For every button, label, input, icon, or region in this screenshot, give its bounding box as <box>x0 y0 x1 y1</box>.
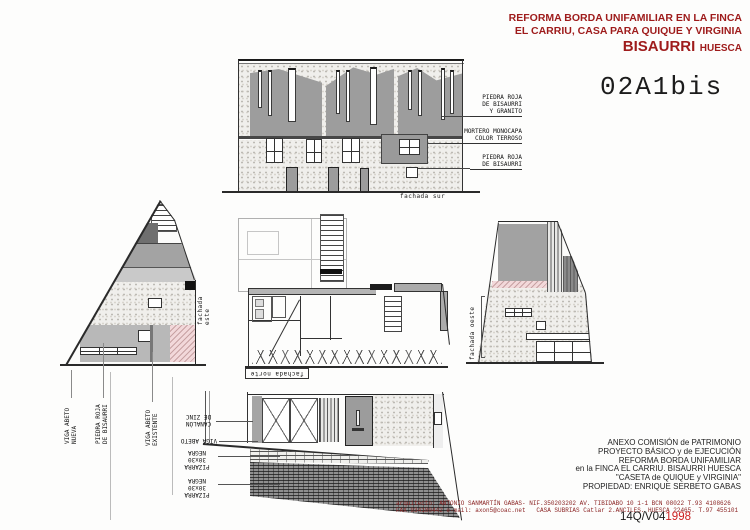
slit-window <box>408 70 412 110</box>
slit-window <box>336 70 340 114</box>
stone-wall <box>373 395 433 446</box>
slit-window <box>346 70 350 122</box>
east-section-drawing <box>63 198 205 370</box>
window-wide <box>536 341 592 362</box>
window-small <box>406 167 418 178</box>
lower-wall <box>80 325 170 362</box>
plan-outer-wall <box>248 288 249 368</box>
slit-window <box>268 70 272 116</box>
timber-door-leaf <box>290 398 318 443</box>
label-bracket <box>481 296 482 358</box>
plan-fixture <box>255 309 264 319</box>
annotation-slate-2: PIZARRA 30x30 NEGRA <box>176 477 218 498</box>
project-title-line1: REFORMA BORDA UNIFAMILIAR EN LA FINCA <box>509 12 742 25</box>
plan-fixture <box>255 299 264 307</box>
roof-panel <box>498 224 547 283</box>
plan-room <box>247 231 279 255</box>
facade-label-south: fachada sur <box>400 194 445 201</box>
door <box>286 167 298 192</box>
drawing-sheet: REFORMA BORDA UNIFAMILIAR EN LA FINCA EL… <box>0 0 750 530</box>
window <box>266 138 283 163</box>
south-wall-edge <box>238 60 239 192</box>
plan-line <box>311 219 312 291</box>
plan-zigzag-stone-edge <box>252 350 442 364</box>
south-roof-line-thin <box>238 63 464 64</box>
door-handle <box>356 410 360 426</box>
window <box>148 298 162 308</box>
label-bracket-tick <box>481 296 485 297</box>
facade-label-north-box: fachada norte <box>245 368 309 379</box>
facade-label-east: fachada este <box>197 283 211 325</box>
window <box>505 308 532 317</box>
window-sill <box>526 333 592 340</box>
south-wall-edge <box>462 60 463 192</box>
annotation-beam-existing: VIGA ABETO EXISTENTE <box>145 398 159 446</box>
sheet-reference-year: 1998 <box>665 511 691 523</box>
door <box>328 167 339 192</box>
province-name: HUESCA <box>700 43 742 54</box>
west-top-edge <box>498 221 558 222</box>
door <box>360 168 369 192</box>
stair-landing <box>320 269 342 274</box>
slit-window <box>441 68 445 120</box>
leader-line <box>152 352 153 402</box>
window-strip <box>80 347 137 355</box>
window <box>342 138 360 163</box>
title-block-line6: PROPIEDAD: ENRIQUE SERBETO GABAS <box>575 483 741 492</box>
north-left-edge <box>247 392 248 443</box>
leader-line <box>219 441 258 442</box>
annotation-stone-granite: PIEDRA ROJA DE BISAURRI Y GRANITO <box>470 94 522 117</box>
window <box>306 139 322 163</box>
east-right-edge <box>195 280 196 365</box>
leader-line <box>71 370 72 398</box>
project-title-line2: EL CARRIU, CASA PARA QUIQUE Y VIRGINIA <box>509 25 742 38</box>
sheet-reference-code: 14Q/V04 <box>620 511 665 523</box>
label-bracket-tick <box>481 357 485 358</box>
slatted-panel <box>319 398 339 442</box>
town-name: BISAURRI <box>623 38 696 55</box>
wall-strip <box>252 396 262 443</box>
west-base-line <box>466 362 604 364</box>
project-title-block: REFORMA BORDA UNIFAMILIAR EN LA FINCA EL… <box>509 12 742 57</box>
leader-line <box>428 143 444 144</box>
south-roof-line <box>238 59 464 61</box>
slit-window <box>288 68 296 122</box>
facade-label-north: fachada norte <box>246 369 308 378</box>
annotation-beam: VIGA ABETO <box>179 437 219 444</box>
window <box>399 139 420 155</box>
east-base-line <box>60 364 206 366</box>
annotation-gutter: CANALÓN DE ZINC <box>181 413 216 427</box>
slit-window <box>450 70 454 114</box>
terrace-stair <box>384 296 402 332</box>
pink-render <box>170 325 196 362</box>
leader-line <box>418 168 470 169</box>
annotation-stone: PIEDRA ROJA DE BISAURRI <box>470 154 522 170</box>
projection-line <box>110 372 111 520</box>
plan-wall <box>300 296 301 356</box>
architect-info-line1: arquitecto: ANTONIO SANMARTÍN GABAS- NIF… <box>396 500 731 507</box>
leader-line <box>218 484 280 485</box>
annotation-slate-1: PIZARRA 30x30 NEGRA <box>176 449 218 470</box>
plan-dark-bar <box>370 284 392 290</box>
sheet-code: 02A1bis <box>600 72 723 102</box>
projection-line <box>172 377 173 495</box>
annotation-stone-east: PIEDRA ROJA DE BISAURRI <box>95 396 109 444</box>
slit-window <box>418 70 422 116</box>
roof-edge-dark <box>563 256 578 292</box>
door-handle-bar <box>352 428 364 431</box>
terrace-wall <box>394 283 442 292</box>
timber-door-leaf <box>262 398 290 443</box>
plan-top-wall <box>248 288 376 295</box>
leader-line <box>442 116 470 117</box>
north-right-edge <box>442 392 452 452</box>
plan-wall <box>330 296 331 340</box>
plan-fixture <box>272 296 286 318</box>
annotation-mortar: MORTERO MONOCAPA COLOR TERROSO <box>444 128 522 144</box>
window-small <box>434 412 442 425</box>
title-block: ANEXO COMISIÓN de PATRIMONIO PROYECTO BÁ… <box>575 439 741 492</box>
sheet-reference: 14Q/V041998 <box>620 511 691 523</box>
leader-line <box>216 421 253 422</box>
plan-wall <box>300 338 342 339</box>
leader-line <box>103 343 104 398</box>
stone-wall <box>91 282 196 325</box>
slit-window <box>370 67 377 125</box>
facade-label-west: fachada oeste <box>469 294 476 360</box>
leader-line <box>218 456 280 457</box>
slit-window <box>258 70 262 108</box>
pink-render <box>492 281 547 288</box>
window-small <box>536 321 546 330</box>
annotation-beam-new: VIGA ABETO NUEVA <box>64 396 78 444</box>
